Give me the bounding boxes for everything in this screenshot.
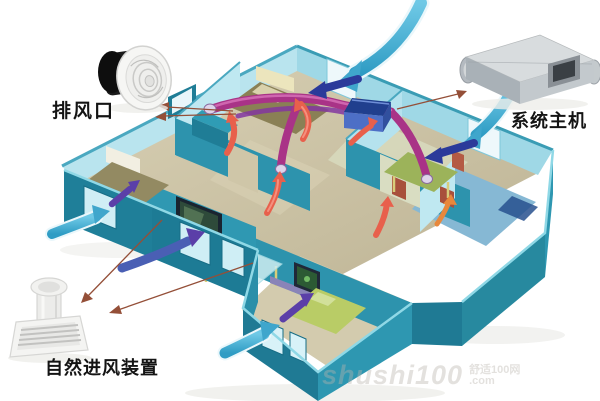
ventilation-system-diagram: 排风口 系统主机 自然进风装置 shushi100 舒适100网 .com [0,0,600,401]
duct-terminal [276,165,287,174]
illustration-canvas [0,0,600,401]
watermark-site-name: 舒适100网 [469,365,520,376]
system-unit-photo [460,0,600,110]
site-watermark: shushi100 舒适100网 .com [322,360,520,391]
notch-wall [412,302,462,346]
intake-device-photo [8,278,92,363]
air-intake-label: 自然进风装置 [45,354,159,380]
watermark-domain: .com [469,376,520,387]
system-unit-label: 系统主机 [511,107,587,133]
watermark-brand: shushi100 [322,360,463,391]
duct-terminal [422,175,433,184]
intake-louver-box [10,316,88,357]
intake-tube [31,278,67,324]
exhaust-vent-label: 排风口 [52,96,115,123]
